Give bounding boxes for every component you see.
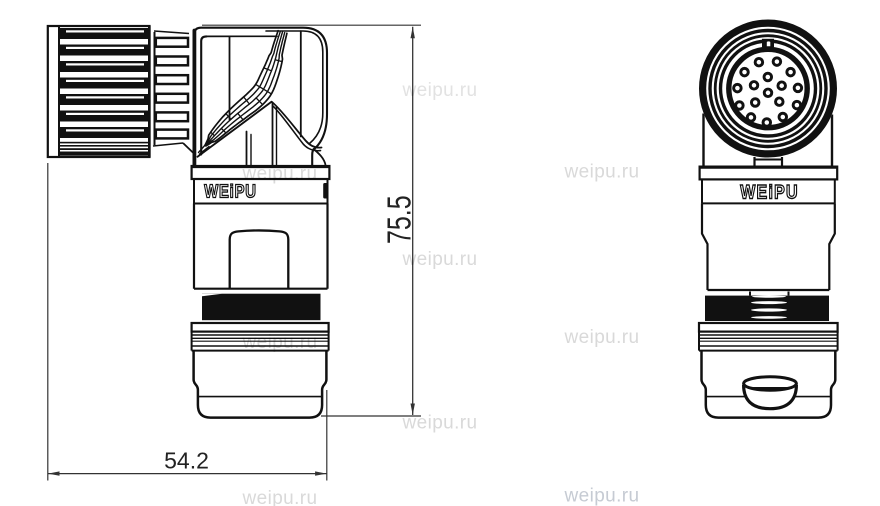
svg-text:54.2: 54.2 <box>164 448 209 474</box>
svg-text:weipu.ru: weipu.ru <box>241 332 317 353</box>
svg-text:weipu.ru: weipu.ru <box>401 413 477 434</box>
svg-text:weipu.ru: weipu.ru <box>241 488 317 506</box>
svg-text:weipu.ru: weipu.ru <box>563 162 639 183</box>
svg-text:WEiPU: WEiPU <box>740 181 799 203</box>
svg-text:weipu.ru: weipu.ru <box>401 80 477 101</box>
svg-text:weipu.ru: weipu.ru <box>401 249 477 270</box>
svg-text:weipu.ru: weipu.ru <box>563 486 639 506</box>
svg-text:weipu.ru: weipu.ru <box>241 164 317 185</box>
svg-text:weipu.ru: weipu.ru <box>563 327 639 348</box>
svg-text:75.5: 75.5 <box>382 195 418 244</box>
